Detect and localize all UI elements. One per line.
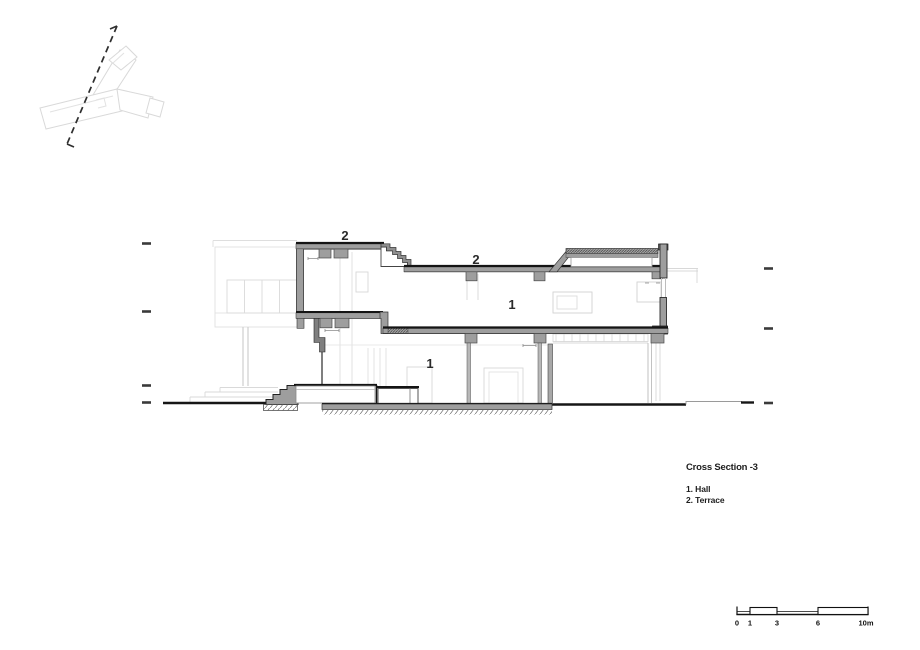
steps-footing-hatch [264,405,298,411]
slab-hatch-strip [388,328,408,334]
lower-floor [264,385,553,415]
scale-mark-3: 3 [775,619,779,628]
section-drawing: 2 2 1 1 0 1 3 6 10m [0,0,920,650]
scale-mark-1: 1 [748,619,752,628]
terrace-slab [404,266,666,281]
plinth-window-box [378,389,418,405]
level-markers-right [764,269,773,404]
room-label-terrace-main: 2 [472,252,479,267]
legend-item-hall: 1. Hall [686,484,758,495]
monitor-gravel-hatch [566,249,658,254]
level-markers-left [142,244,151,403]
drawing-title: Cross Section -3 [686,462,758,473]
lower-hall-glazing [467,343,553,404]
title-block: Cross Section -3 1. Hall 2. Terrace [686,462,758,506]
hall-end-wall [548,344,553,404]
key-plan [40,46,164,129]
right-wall-window [662,278,666,298]
room-label-terrace-tower: 2 [341,228,348,243]
structure-cut [264,243,669,415]
scale-mark-6: 6 [816,619,820,628]
drawing-sheet: 2 2 1 1 0 1 3 6 10m Cross Section -3 1. … [0,0,920,650]
tower [296,243,411,386]
floor-slab-band [322,404,552,410]
scale-bar: 0 1 3 6 10m [735,607,874,628]
ground-step-right [686,402,742,405]
scale-mark-0: 0 [735,619,739,628]
platform-body [296,386,375,403]
entrance-steps [266,386,298,405]
room-label-hall-lower: 1 [426,356,433,371]
legend-item-terrace: 2. Terrace [686,495,758,506]
cut-line-hook-bottom [67,144,74,147]
scale-mark-10m: 10m [858,619,873,628]
clerestory-window [571,258,652,267]
foundation-hatch [322,410,552,415]
room-label-hall-upper: 1 [508,297,515,312]
